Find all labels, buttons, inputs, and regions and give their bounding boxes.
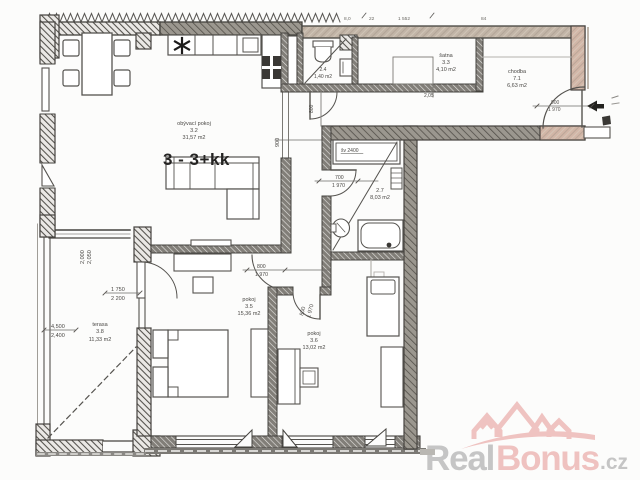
svg-text:3.2: 3.2 — [190, 128, 198, 134]
svg-text:pokoj: pokoj — [307, 331, 320, 337]
svg-text:13,02 m2: 13,02 m2 — [303, 345, 326, 351]
svg-text:pokoj: pokoj — [242, 297, 255, 303]
svg-text:7.1: 7.1 — [513, 76, 521, 82]
svg-text:8,0: 8,0 — [344, 16, 351, 22]
svg-text:obývací pokoj: obývací pokoj — [177, 121, 211, 127]
svg-text:11,33 m2: 11,33 m2 — [89, 337, 112, 343]
svg-text:1 750: 1 750 — [111, 287, 125, 293]
svg-text:15,36 m2: 15,36 m2 — [238, 311, 261, 317]
svg-text:1 552: 1 552 — [398, 16, 410, 22]
svg-text:3.5: 3.5 — [245, 304, 253, 310]
svg-text:4,10 m2: 4,10 m2 — [436, 67, 456, 73]
svg-text:2,400: 2,400 — [51, 333, 65, 339]
svg-text:1 970: 1 970 — [255, 272, 268, 278]
svg-text:2,000: 2,000 — [80, 250, 86, 264]
svg-text:900: 900 — [275, 138, 281, 147]
svg-text:4,500: 4,500 — [51, 324, 65, 330]
svg-text:1 970: 1 970 — [332, 183, 345, 189]
svg-text:terasa: terasa — [92, 322, 108, 328]
svg-text:800: 800 — [257, 264, 266, 270]
svg-text:700: 700 — [335, 175, 344, 181]
svg-text:chodba: chodba — [508, 69, 527, 75]
svg-text:2,050: 2,050 — [87, 250, 93, 264]
svg-text:šatna: šatna — [439, 53, 453, 59]
svg-text:3.3: 3.3 — [442, 60, 450, 66]
svg-text:900: 900 — [551, 100, 560, 106]
svg-text:Real: Real — [425, 439, 494, 478]
svg-text:22: 22 — [369, 16, 375, 22]
svg-text:1,40 m2: 1,40 m2 — [314, 74, 332, 80]
svg-text:3 - 3+kk: 3 - 3+kk — [163, 150, 230, 169]
svg-text:šv 2400: šv 2400 — [341, 148, 359, 154]
svg-text:3.8: 3.8 — [96, 329, 104, 335]
svg-text:2.4: 2.4 — [320, 67, 327, 73]
svg-text:3.6: 3.6 — [310, 338, 318, 344]
svg-text:2,05: 2,05 — [424, 93, 434, 99]
svg-text:.cz: .cz — [600, 451, 628, 474]
svg-text:2 200: 2 200 — [111, 296, 125, 302]
svg-text:6,63 m2: 6,63 m2 — [507, 83, 527, 89]
svg-text:1 970: 1 970 — [548, 107, 561, 113]
svg-text:31,57 m2: 31,57 m2 — [183, 135, 206, 141]
svg-text:800: 800 — [309, 104, 315, 113]
svg-text:2.7: 2.7 — [376, 188, 384, 194]
svg-text:Bonus: Bonus — [496, 439, 600, 478]
svg-text:8,03 m2: 8,03 m2 — [370, 195, 390, 201]
svg-text:84: 84 — [481, 16, 487, 22]
